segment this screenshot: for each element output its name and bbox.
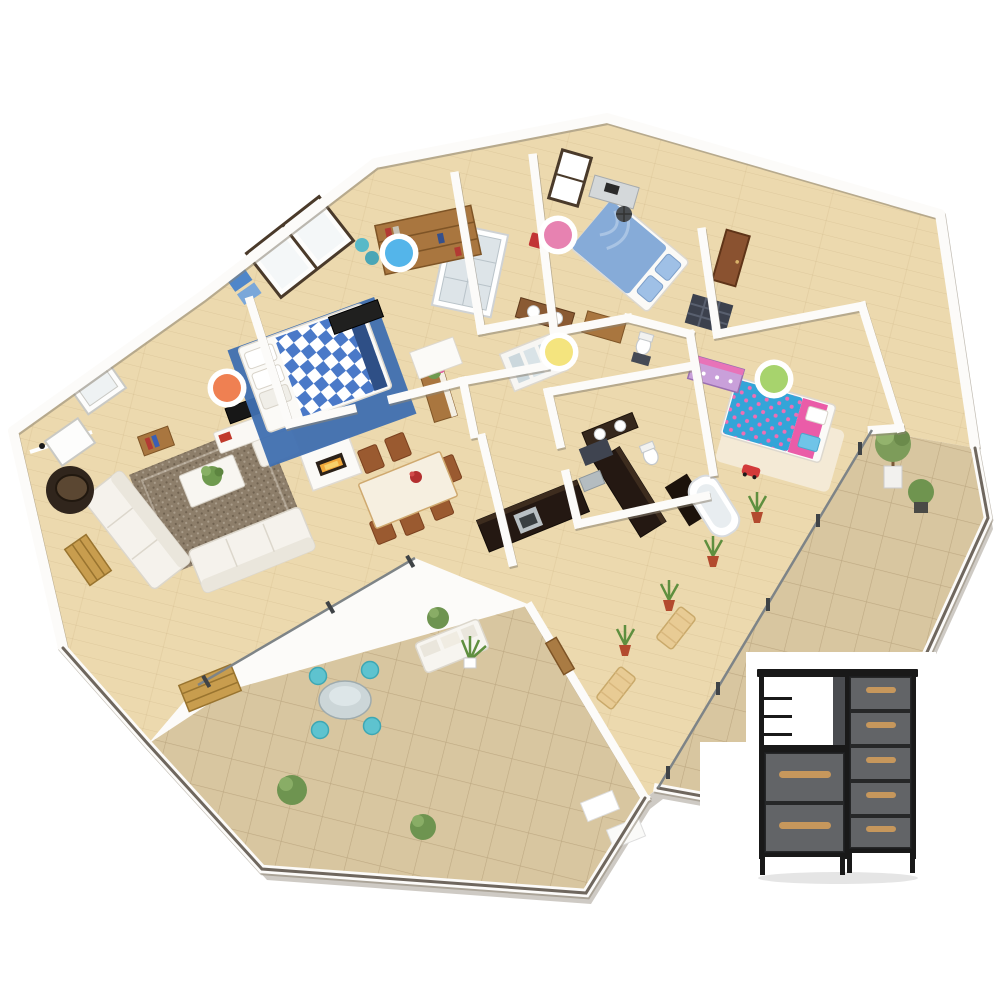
handle-wood [866, 757, 896, 763]
handle-wood [779, 822, 831, 829]
glass-post [858, 442, 862, 455]
handle-wood [779, 771, 831, 778]
glass-post [666, 766, 670, 779]
round-glass-table [319, 681, 371, 719]
terrace-bush [277, 775, 307, 805]
dresser-shadow [758, 872, 918, 884]
product-photo-background2 [700, 742, 760, 884]
floorplan-scene [0, 0, 1000, 1000]
aqua-stool [312, 722, 329, 739]
desk-chair [616, 206, 632, 222]
marker-blue-dot [385, 239, 413, 267]
handle-wood [866, 792, 896, 798]
aqua-stool [364, 718, 381, 735]
terrace-bush [427, 607, 449, 629]
dresser-cubby-backing [764, 676, 834, 748]
marker-pink[interactable] [539, 216, 578, 255]
marker-pink-dot [544, 221, 572, 249]
aqua-stool [362, 662, 379, 679]
glass-post [716, 682, 720, 695]
glass-post [816, 514, 820, 527]
marker-yellow[interactable] [540, 333, 579, 372]
glass-post [766, 598, 770, 611]
dresser-side-panel [833, 677, 845, 745]
aqua-stool [310, 668, 327, 685]
marker-yellow-dot [545, 338, 573, 366]
marker-orange[interactable] [208, 369, 247, 408]
marker-green[interactable] [755, 360, 794, 399]
terrace-bush [410, 814, 436, 840]
wall-terrace-join [872, 428, 900, 430]
handle-wood [866, 826, 896, 832]
marker-green-dot [760, 365, 788, 393]
marker-blue[interactable] [380, 234, 419, 273]
screenshot-canvas [0, 0, 1000, 1000]
handle-wood [866, 722, 896, 728]
marker-orange-dot [213, 374, 241, 402]
papasan-chair [46, 466, 94, 514]
handle-wood [866, 687, 896, 693]
